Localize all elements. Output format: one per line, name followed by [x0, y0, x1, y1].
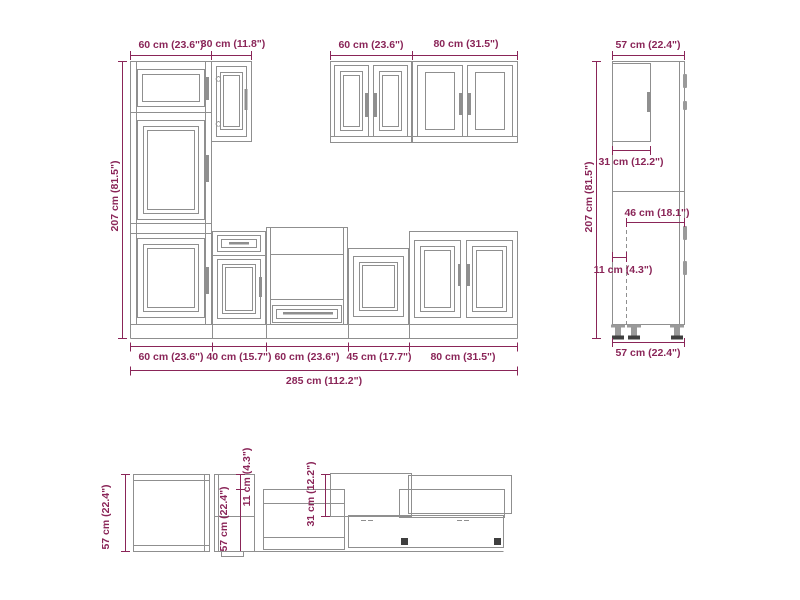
base-cabinet-oven-60: [267, 228, 348, 325]
door-handle: [365, 93, 368, 117]
door-handle: [647, 92, 650, 112]
dimension-line-front-offset: [613, 252, 627, 262]
base-cabinet-40: [213, 232, 266, 325]
leg-icon: [670, 325, 684, 340]
dimension-label-base-80: 80 cm (31.5"): [430, 351, 495, 363]
wall-cabinet-80: [413, 62, 518, 143]
diagram-svg: 60 cm (23.6") 30 cm (11.8") 60 cm (23.6"…: [0, 0, 800, 600]
leg-icon: [494, 538, 501, 545]
dimension-label-side-top-depth: 57 cm (22.4"): [615, 39, 680, 51]
dimension-label-side-height: 207 cm (81.5"): [583, 162, 595, 233]
door-handle: [206, 267, 209, 294]
leg-icon: [401, 538, 408, 545]
drawer-handle: [229, 242, 249, 245]
base-cabinet-45: [349, 249, 409, 325]
drawer-handle: [283, 312, 333, 315]
tall-cabinet-bottom-door: [138, 239, 205, 318]
side-elevation: 57 cm (22.4") 207 cm (81.5") 31 cm (12.2…: [583, 39, 690, 359]
plan-tall-cabinet-footprint: [134, 475, 210, 552]
door-handle: [459, 93, 462, 115]
plan-view: 57 cm (22.4") 57 cm (22.4") 11 cm (4.3")…: [100, 448, 512, 557]
dimension-label-base-60b: 60 cm (23.6"): [274, 351, 339, 363]
dimension-label-wall-80: 80 cm (31.5"): [433, 38, 498, 50]
tall-cabinet-top-door: [138, 70, 205, 107]
door-handle: [206, 77, 209, 100]
dimension-label-base-40: 40 cm (15.7"): [206, 351, 271, 363]
dimension-line-side-top-depth: [613, 51, 685, 60]
dimension-label-plan-left-depth: 57 cm (22.4"): [100, 484, 112, 549]
base-cabinet-80: [410, 232, 518, 325]
leg-icon: [611, 325, 625, 340]
door-handle: [206, 155, 209, 182]
door-handle: [468, 93, 471, 115]
wall-cabinet-80-body: [413, 62, 518, 143]
dimension-line-upper-door-depth: [613, 146, 651, 155]
base-cabinet-80-left-door: [415, 241, 461, 318]
dimension-label-upper-door-depth: 31 cm (12.2"): [598, 156, 663, 168]
dimension-label-top-30: 30 cm (11.8"): [201, 38, 266, 50]
base-cabinet-80-right-door: [467, 241, 513, 318]
dimension-label-base-45: 45 cm (17.7"): [346, 351, 411, 363]
plan-tall-cabinet-lines: [134, 475, 210, 552]
wall-cabinet-60-right-door: [374, 66, 408, 137]
front-elevation: 60 cm (23.6") 30 cm (11.8") 60 cm (23.6"…: [109, 38, 518, 387]
kitchen-dimension-diagram: 60 cm (23.6") 30 cm (11.8") 60 cm (23.6"…: [0, 0, 800, 600]
plan-oven-cabinet: [264, 490, 345, 550]
wall-cabinet-60: [331, 62, 412, 143]
wall-cabinet-30: [212, 62, 252, 142]
dimension-label-base-inner-depth: 46 cm (18.1"): [624, 207, 689, 219]
plan-wall-cabinet-80: [409, 476, 512, 514]
dimension-line-wall-widths: [331, 51, 518, 60]
plan-oven-cabinet-lines: [264, 504, 345, 538]
dimension-line-top-widths: [131, 51, 252, 60]
tall-cabinet-middle-door: [138, 121, 205, 220]
dimension-label-front-height: 207 cm (81.5"): [109, 161, 121, 232]
wall-cabinet-80-right-door: [468, 66, 513, 137]
dimension-label-plan-wall-depth: 31 cm (12.2"): [305, 461, 317, 526]
hinge-icon: [683, 226, 687, 240]
plan-tall-cabinet: [134, 475, 210, 552]
plan-base-cabinets-footprint: [215, 516, 504, 552]
door-handle: [467, 264, 470, 286]
wall-cabinet-60-left-door: [335, 66, 369, 137]
side-upper-door: [613, 64, 651, 142]
dimension-label-wall-60: 60 cm (23.6"): [338, 39, 403, 51]
leg-icon: [627, 325, 641, 340]
door-handle: [374, 93, 377, 117]
cabinet-legs: [611, 325, 684, 340]
hinge-icon: [683, 101, 687, 110]
dimension-label-base-60a: 60 cm (23.6"): [138, 351, 203, 363]
hinge-icon: [683, 261, 687, 275]
door-handle: [458, 264, 461, 286]
dimension-label-plan-front-offset: 11 cm (4.3"): [241, 448, 253, 507]
hinge-icon: [683, 74, 687, 88]
wall-cabinet-80-left-door: [418, 66, 463, 137]
side-cabinet-outline: [613, 62, 688, 326]
base-cabinet-40-door: [218, 260, 261, 319]
dimension-line-plan-wall-depth: [321, 475, 330, 517]
tall-cabinet: [131, 62, 212, 325]
door-handle: [259, 277, 262, 297]
dimension-line-base-inner-depth: [627, 218, 685, 227]
dimension-label-side-bottom-depth: 57 cm (22.4"): [615, 347, 680, 359]
plan-oven-cabinet-footprint: [264, 490, 345, 550]
base-cabinet-45-body: [349, 249, 409, 325]
wall-cabinet-30-door: [217, 67, 247, 137]
dimension-line-plan-left-depth: [121, 475, 130, 552]
dimension-label-plan-inner-depth: 57 cm (22.4"): [218, 486, 230, 551]
dimension-label-front-offset: 11 cm (4.3"): [594, 264, 653, 276]
plinth: [131, 325, 518, 339]
base-cabinet-80-body: [410, 232, 518, 325]
dimension-label-total-width: 285 cm (112.2"): [286, 375, 362, 387]
door-handle: [245, 89, 248, 110]
base-cabinet-45-door: [354, 257, 404, 317]
dimension-label-top-60: 60 cm (23.6"): [138, 39, 203, 51]
